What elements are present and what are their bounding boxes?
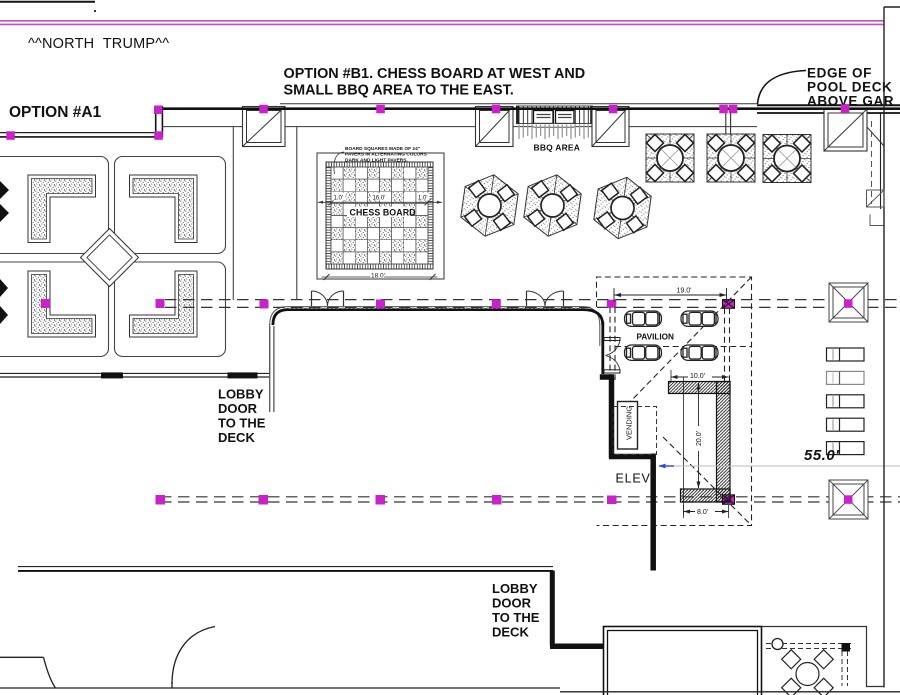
svg-text:VENDING: VENDING (625, 406, 634, 440)
svg-text:10.0': 10.0' (690, 373, 705, 380)
svg-text:CHESS BOARD: CHESS BOARD (350, 208, 416, 218)
svg-text:TO THE: TO THE (492, 610, 540, 625)
svg-text:^^NORTH TRUMP^^: ^^NORTH TRUMP^^ (28, 36, 169, 52)
svg-text:PAVILION: PAVILION (637, 333, 675, 342)
svg-text:20.0': 20.0' (696, 431, 703, 446)
svg-text:ELEV.: ELEV. (616, 472, 654, 486)
svg-text:ABOVE GAR: ABOVE GAR (807, 94, 894, 109)
svg-text:EDGE OF: EDGE OF (807, 66, 872, 81)
svg-text:LOBBY: LOBBY (218, 387, 264, 402)
svg-text:POOL DECK: POOL DECK (807, 80, 892, 95)
svg-text:18.0': 18.0' (371, 273, 385, 280)
svg-text:OPTION #A1: OPTION #A1 (9, 104, 102, 121)
svg-text:PAVERS IN ALTERNATING COLORS: PAVERS IN ALTERNATING COLORS (345, 152, 428, 158)
svg-text:BOARD SQUARES MADE OF 24": BOARD SQUARES MADE OF 24" (345, 146, 420, 152)
svg-text:DECK: DECK (492, 625, 529, 640)
svg-text:1.0': 1.0' (418, 196, 428, 202)
svg-text:OPTION #B1. CHESS BOARD AT WES: OPTION #B1. CHESS BOARD AT WEST AND (284, 66, 586, 82)
svg-text:DOOR: DOOR (492, 596, 532, 611)
svg-text:TO THE: TO THE (218, 416, 266, 431)
svg-text:19.0': 19.0' (677, 287, 692, 294)
svg-text:BBQ AREA: BBQ AREA (534, 143, 581, 153)
svg-text:16.0': 16.0' (373, 196, 386, 202)
svg-text:SMALL BBQ AREA TO THE EAST.: SMALL BBQ AREA TO THE EAST. (284, 83, 514, 99)
svg-text:DECK: DECK (218, 430, 255, 445)
svg-text:DARK AND LIGHT PAVERS.: DARK AND LIGHT PAVERS. (345, 157, 408, 163)
svg-text:LOBBY: LOBBY (492, 581, 538, 596)
svg-text:1.0': 1.0' (334, 196, 344, 202)
svg-text:DOOR: DOOR (218, 401, 258, 416)
svg-text:8.0': 8.0' (697, 509, 708, 516)
svg-text:55.0': 55.0' (804, 447, 839, 464)
